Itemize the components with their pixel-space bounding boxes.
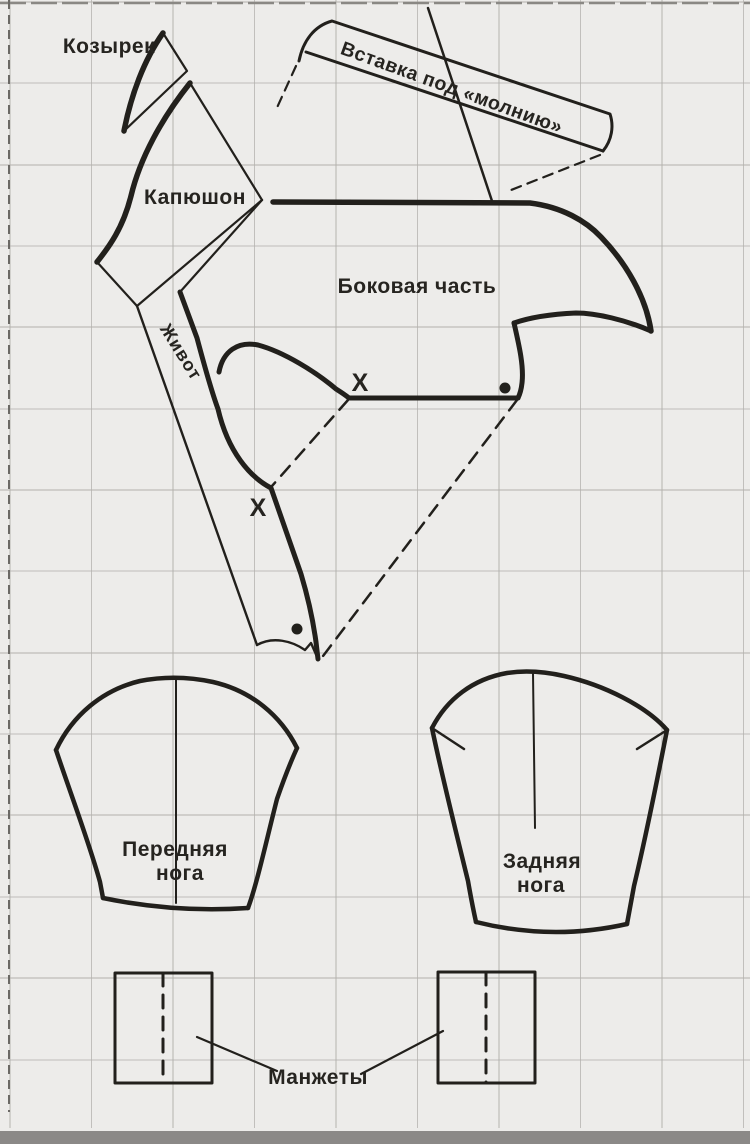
hood-label: Капюшон [144,186,246,209]
paper-background [0,0,750,1144]
x-mark-side-part: X [352,369,369,397]
pattern-sheet: Козырек Вставка под «молнию» Капюшон Бок… [0,0,750,1144]
side-part-notch-dot [500,383,511,394]
visor-label: Козырек [63,35,155,58]
side-part-label: Боковая часть [338,275,497,298]
pattern-diagram: Козырек Вставка под «молнию» Капюшон Бок… [0,0,750,1144]
front-leg-label-line1: Передняя [122,838,228,861]
bottom-bar [0,1131,750,1144]
cuffs-label: Манжеты [268,1066,368,1089]
front-leg-label-line2: нога [156,862,204,885]
x-mark-belly: X [250,494,267,522]
belly-notch-dot [292,624,303,635]
back-leg-label-line1: Задняя [503,850,581,873]
back-leg-label-line2: нога [517,874,565,897]
